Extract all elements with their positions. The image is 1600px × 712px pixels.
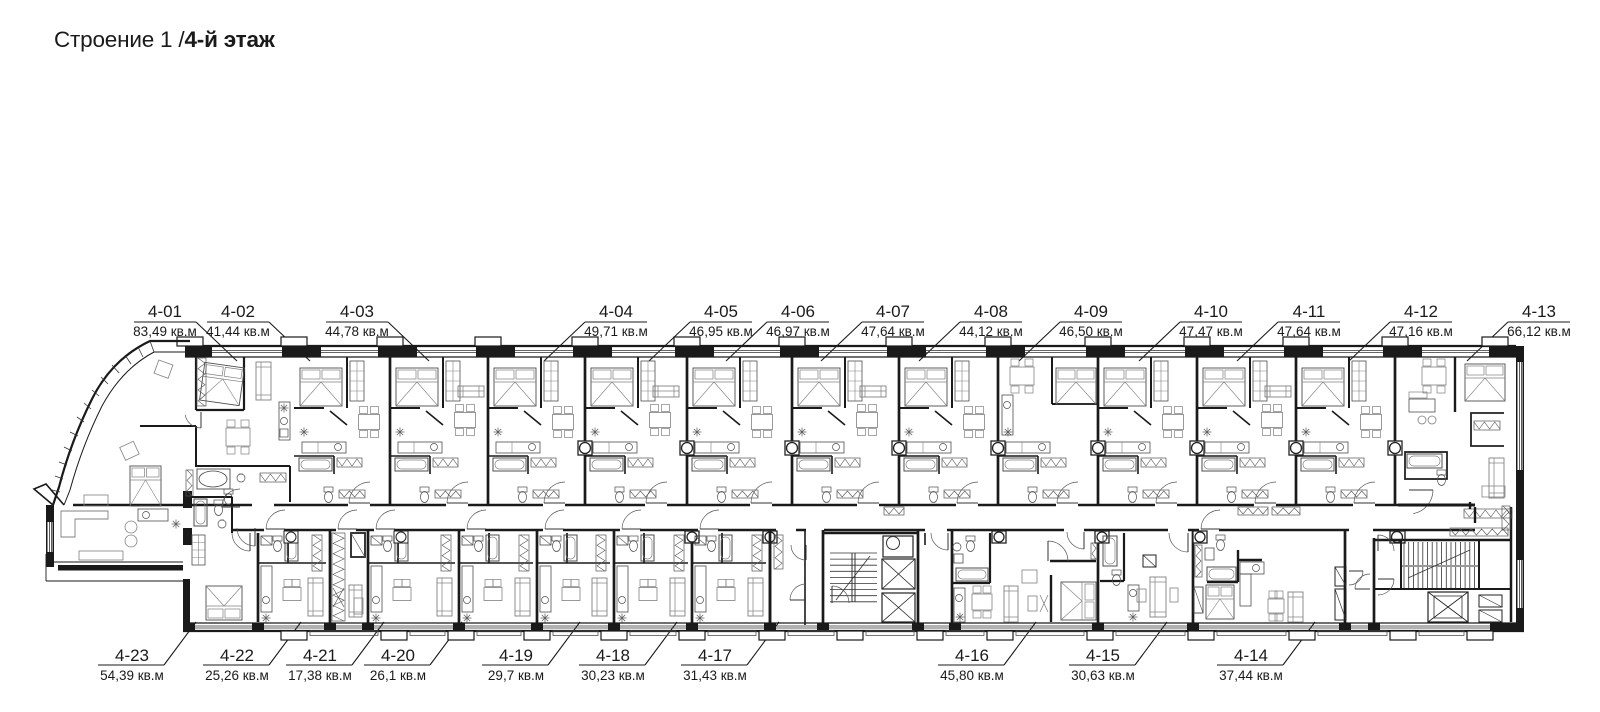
svg-text:17,38 кв.м: 17,38 кв.м	[288, 668, 352, 683]
svg-text:4-23: 4-23	[115, 646, 149, 665]
svg-text:4-02: 4-02	[221, 302, 255, 321]
svg-text:37,44 кв.м: 37,44 кв.м	[1219, 668, 1283, 683]
svg-text:4-16: 4-16	[955, 646, 989, 665]
svg-text:54,39 кв.м: 54,39 кв.м	[100, 668, 164, 683]
svg-text:4-10: 4-10	[1194, 302, 1228, 321]
svg-text:Строение 1 /4-й этаж: Строение 1 /4-й этаж	[54, 27, 276, 52]
svg-text:41,44 кв.м: 41,44 кв.м	[206, 324, 270, 339]
svg-text:4-01: 4-01	[148, 302, 182, 321]
svg-text:26,1 кв.м: 26,1 кв.м	[370, 668, 426, 683]
svg-text:4-12: 4-12	[1404, 302, 1438, 321]
svg-text:4-21: 4-21	[303, 646, 337, 665]
svg-text:4-11: 4-11	[1293, 302, 1326, 321]
svg-text:4-08: 4-08	[974, 302, 1008, 321]
svg-text:66,12 кв.м: 66,12 кв.м	[1507, 324, 1571, 339]
svg-text:29,7 кв.м: 29,7 кв.м	[488, 668, 544, 683]
svg-text:30,63 кв.м: 30,63 кв.м	[1071, 668, 1135, 683]
svg-text:4-22: 4-22	[220, 646, 254, 665]
svg-text:4-13: 4-13	[1522, 302, 1556, 321]
svg-text:4-09: 4-09	[1074, 302, 1108, 321]
svg-text:4-03: 4-03	[340, 302, 374, 321]
svg-text:4-18: 4-18	[596, 646, 630, 665]
svg-text:4-05: 4-05	[704, 302, 738, 321]
svg-text:30,23 кв.м: 30,23 кв.м	[581, 668, 645, 683]
svg-text:4-17: 4-17	[698, 646, 732, 665]
svg-text:25,26 кв.м: 25,26 кв.м	[205, 668, 269, 683]
svg-text:4-04: 4-04	[599, 302, 633, 321]
svg-text:4-06: 4-06	[781, 302, 815, 321]
svg-text:45,80 кв.м: 45,80 кв.м	[940, 668, 1004, 683]
svg-text:4-19: 4-19	[499, 646, 533, 665]
svg-text:4-15: 4-15	[1086, 646, 1120, 665]
svg-text:31,43 кв.м: 31,43 кв.м	[683, 668, 747, 683]
svg-text:4-07: 4-07	[876, 302, 910, 321]
svg-text:4-20: 4-20	[381, 646, 415, 665]
svg-text:4-14: 4-14	[1234, 646, 1268, 665]
